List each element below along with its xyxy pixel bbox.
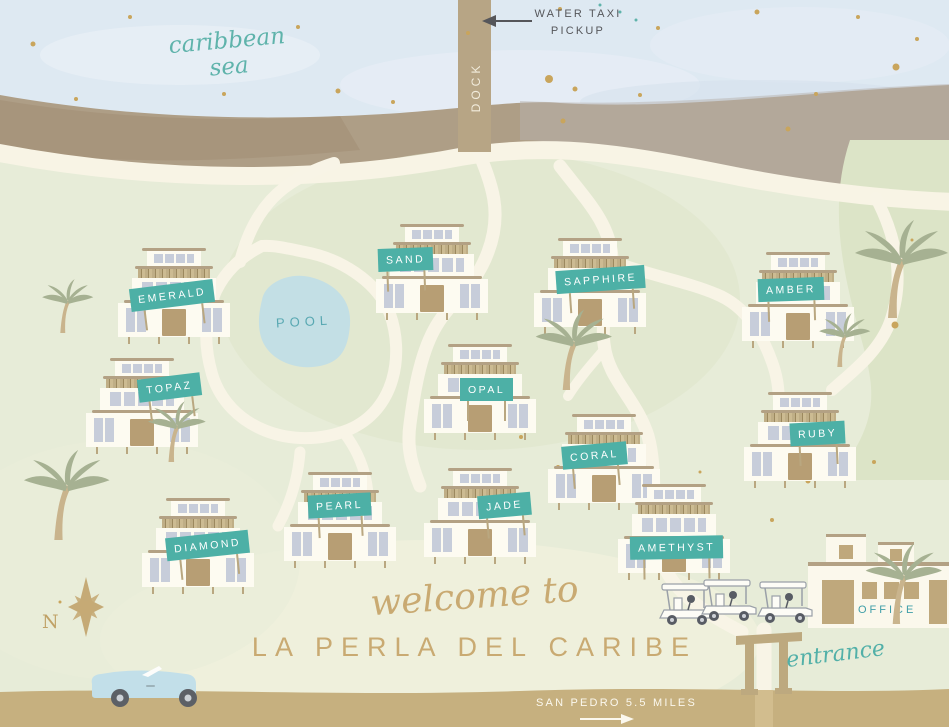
villa-sign: JADE [477,492,532,520]
villa-jade: JADE [424,468,536,564]
villa-diamond: DIAMOND [142,498,254,594]
compass-north-label: N [42,611,59,633]
villa-topaz: TOPAZ [86,358,198,454]
villa-sign: CORAL [561,441,627,470]
road [0,689,949,727]
villa-ruby: RUBY [744,392,856,488]
road-sign-label: SAN PEDRO 5.5 MILES [536,697,697,709]
office-label: OFFICE [858,604,916,616]
road-sign-arrow [580,714,634,724]
villa-sapphire: SAPPHIRE [534,238,646,334]
villa-sign: SAND [378,247,434,272]
car [92,666,197,707]
villa-emerald: EMERALD [118,248,230,344]
water-taxi-label: WATER TAXI PICKUP [518,6,638,40]
resort-map: EMERALD SAND SAPPHIRE AMBER TOPAZ OPAL C… [0,0,949,727]
villa-sign: AMBER [758,277,825,302]
villa-pearl: PEARL [284,472,396,568]
villa-sign: AMETHYST [630,535,724,560]
villa-sign: OPAL [460,378,513,401]
water-taxi-line1: WATER TAXI [535,8,622,20]
villa-sign: RUBY [789,421,845,447]
water-taxi-line2: PICKUP [551,25,605,37]
shore-path [0,150,949,202]
villa-sign: SAPPHIRE [555,265,645,294]
villa-sign: PEARL [307,492,371,518]
pool-label: POOL [258,312,351,332]
villa-opal: OPAL [424,344,536,440]
villa-amber: AMBER [742,252,854,348]
sea-label: caribbean sea [146,21,310,88]
villa-sand: SAND [376,224,488,320]
dock-label: DOCK [469,57,483,117]
office-door [929,580,947,624]
